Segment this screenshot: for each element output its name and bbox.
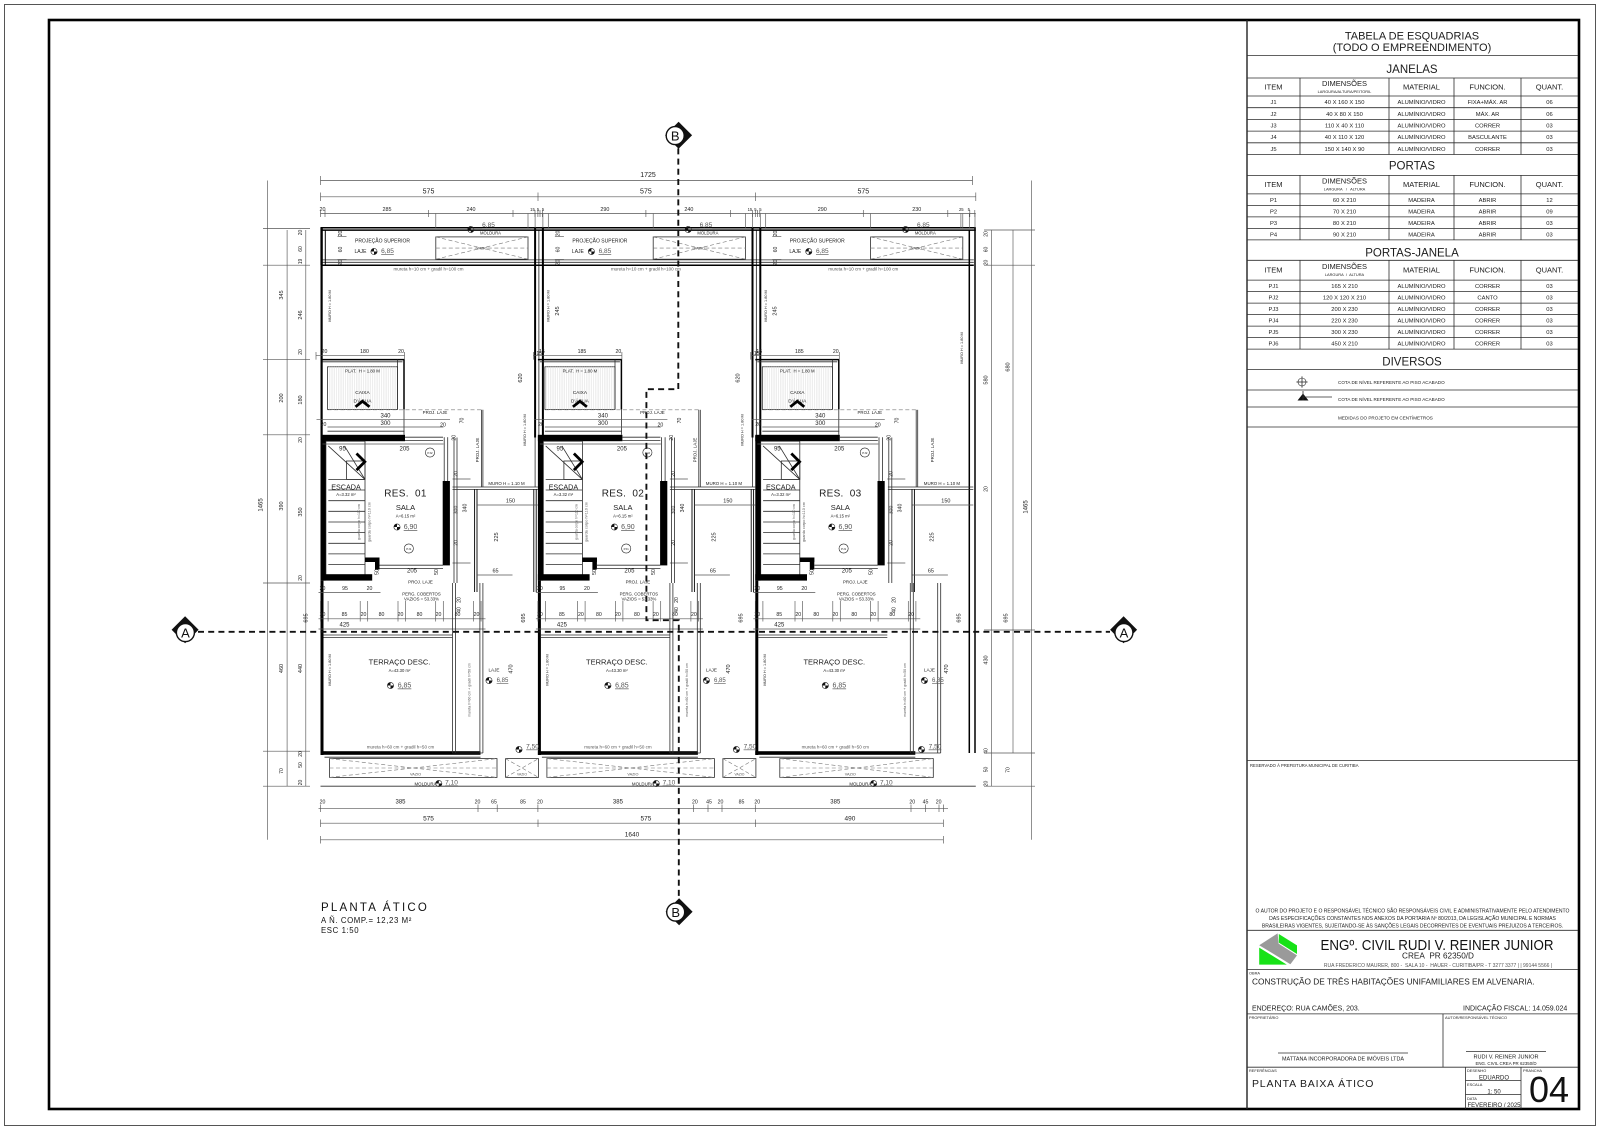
svg-text:VAZIOS = 53.33%: VAZIOS = 53.33%	[839, 597, 874, 602]
svg-text:MATERIAL: MATERIAL	[1403, 83, 1440, 92]
svg-text:20: 20	[298, 780, 304, 786]
svg-text:PJ3: PJ3	[1269, 307, 1279, 313]
svg-text:205: 205	[399, 447, 410, 453]
svg-text:95: 95	[774, 447, 781, 453]
svg-text:575: 575	[857, 189, 869, 196]
svg-text:09: 09	[1546, 209, 1552, 215]
svg-text:COTA DE NÍVEL REFERENTE AO PIS: COTA DE NÍVEL REFERENTE AO PISO ACABADO	[1338, 396, 1445, 402]
svg-text:245: 245	[555, 306, 561, 315]
svg-text:1725: 1725	[640, 172, 656, 179]
svg-text:450 X 210: 450 X 210	[1331, 342, 1357, 348]
svg-text:mureta h=10 cm + gradil h=100: mureta h=10 cm + gradil h=100 cm	[394, 267, 464, 272]
svg-text:VAZIO: VAZIO	[476, 247, 487, 251]
svg-text:460: 460	[279, 664, 285, 673]
svg-text:200: 200	[279, 393, 285, 402]
svg-text:PROJ. LAJE: PROJ. LAJE	[423, 410, 448, 415]
svg-text:ESCALA: ESCALA	[1467, 1082, 1483, 1087]
svg-text:385: 385	[613, 800, 624, 806]
svg-text:ALUMÍNIO/VIDRO: ALUMÍNIO/VIDRO	[1398, 283, 1446, 290]
svg-text:425: 425	[557, 623, 568, 629]
svg-text:PORTAS: PORTAS	[1389, 161, 1436, 173]
svg-text:20: 20	[984, 260, 990, 266]
svg-text:A: A	[1120, 625, 1129, 640]
svg-text:guarda corpo h=110 cm: guarda corpo h=110 cm	[574, 504, 578, 540]
svg-text:ALUMÍNIO/VIDRO: ALUMÍNIO/VIDRO	[1398, 134, 1446, 141]
svg-text:MURO H = 1.80 M: MURO H = 1.80 M	[960, 332, 964, 363]
svg-text:20: 20	[692, 800, 698, 806]
svg-text:PLAT. H = 1.80 M: PLAT. H = 1.80 M	[563, 369, 598, 374]
svg-text:150: 150	[506, 498, 515, 504]
svg-text:B: B	[671, 128, 680, 143]
svg-text:PJ6: PJ6	[1269, 342, 1279, 348]
svg-text:70: 70	[677, 418, 683, 424]
svg-text:FUNCION.: FUNCION.	[1469, 266, 1505, 275]
svg-text:20: 20	[754, 586, 760, 592]
svg-text:50: 50	[984, 767, 990, 773]
svg-text:385: 385	[830, 800, 841, 806]
svg-text:80 X 210: 80 X 210	[1333, 221, 1356, 227]
svg-text:MOLDURA: MOLDURA	[849, 781, 871, 786]
svg-text:PLANTA BAIXA ÁTICO: PLANTA BAIXA ÁTICO	[1252, 1077, 1374, 1090]
svg-text:PJ2: PJ2	[862, 451, 868, 455]
svg-text:VAZIO: VAZIO	[845, 773, 856, 777]
svg-text:PROJEÇÃO SUPERIOR: PROJEÇÃO SUPERIOR	[790, 238, 845, 245]
svg-text:70 X 210: 70 X 210	[1333, 209, 1356, 215]
svg-text:6,85: 6,85	[932, 678, 944, 684]
svg-text:150: 150	[941, 498, 950, 504]
svg-text:CANTO: CANTO	[1477, 296, 1498, 302]
svg-text:guarda corpo h=110 cm: guarda corpo h=110 cm	[585, 502, 589, 542]
svg-text:695: 695	[956, 613, 962, 622]
svg-text:50: 50	[592, 569, 598, 575]
svg-text:TABELA DE ESQUADRIAS: TABELA DE ESQUADRIAS	[1345, 31, 1479, 43]
svg-text:150: 150	[723, 498, 732, 504]
svg-text:20: 20	[338, 231, 344, 237]
svg-text:BRASILEIRAS VIGENTES, SUJEITAN: BRASILEIRAS VIGENTES, SUJEITANDO-SE ÀS S…	[1262, 923, 1563, 930]
svg-text:guarda corpo h=110 cm: guarda corpo h=110 cm	[357, 504, 361, 540]
svg-text:245: 245	[772, 306, 778, 315]
svg-text:MEDIDAS DO PROJETO EM CENTÍMET: MEDIDAS DO PROJETO EM CENTÍMETROS	[1338, 415, 1433, 421]
svg-text:150 X 140 X 90: 150 X 140 X 90	[1325, 147, 1365, 153]
svg-text:220 X 230: 220 X 230	[1331, 319, 1357, 325]
svg-text:20: 20	[773, 260, 779, 266]
svg-text:20: 20	[555, 260, 561, 266]
svg-text:DIMENSÕES: DIMENSÕES	[1322, 262, 1367, 271]
svg-text:ABRIR: ABRIR	[1479, 221, 1497, 227]
svg-text:1465: 1465	[1023, 500, 1029, 514]
svg-text:300 X 230: 300 X 230	[1331, 330, 1357, 336]
svg-text:ESC 1:50: ESC 1:50	[321, 926, 359, 935]
svg-text:340: 340	[463, 504, 469, 513]
svg-text:CONSTRUÇÃO DE TRÊS HABITAÇÕES: CONSTRUÇÃO DE TRÊS HABITAÇÕES UNIFAMILIA…	[1252, 977, 1535, 987]
svg-text:20: 20	[474, 612, 480, 618]
svg-text:7,10: 7,10	[663, 780, 676, 787]
svg-text:RES. 03: RES. 03	[819, 489, 862, 500]
svg-text:60 X 210: 60 X 210	[1333, 198, 1356, 204]
svg-text:PJ1: PJ1	[406, 547, 412, 551]
svg-text:20: 20	[616, 349, 622, 355]
svg-text:20: 20	[298, 751, 304, 757]
svg-text:LAJE: LAJE	[924, 668, 935, 673]
svg-text:12: 12	[1546, 198, 1552, 204]
svg-text:MURO H = 1.80 M: MURO H = 1.80 M	[545, 654, 549, 685]
svg-text:guarda corpo h=110 cm: guarda corpo h=110 cm	[367, 502, 371, 542]
svg-text:20: 20	[338, 260, 344, 266]
svg-text:7,50: 7,50	[929, 744, 942, 751]
svg-text:20: 20	[320, 586, 326, 592]
svg-text:20: 20	[298, 349, 304, 355]
svg-text:ESCADA: ESCADA	[331, 483, 361, 492]
svg-text:J1: J1	[1270, 100, 1276, 106]
svg-text:LARGURA / ALTURA: LARGURA / ALTURA	[1325, 272, 1365, 277]
svg-text:6,85: 6,85	[832, 683, 846, 690]
svg-text:300: 300	[671, 506, 677, 515]
svg-text:240: 240	[467, 207, 476, 213]
svg-text:85: 85	[559, 612, 565, 618]
svg-text:7,10: 7,10	[880, 780, 893, 787]
svg-text:575: 575	[423, 189, 435, 196]
svg-text:200 X 230: 200 X 230	[1331, 307, 1357, 313]
svg-text:CORRER: CORRER	[1475, 147, 1500, 153]
svg-text:20: 20	[984, 781, 990, 787]
svg-text:MOLDURA: MOLDURA	[915, 231, 936, 236]
svg-text:PROJ. LAJE: PROJ. LAJE	[475, 438, 480, 463]
svg-text:A=3.32 m²: A=3.32 m²	[336, 492, 356, 497]
svg-text:ITEM: ITEM	[1265, 266, 1283, 275]
svg-text:20: 20	[398, 612, 404, 618]
svg-text:OBRA: OBRA	[1249, 971, 1260, 976]
svg-text:20: 20	[653, 612, 659, 618]
svg-text:20: 20	[475, 800, 481, 806]
svg-text:185: 185	[578, 349, 587, 355]
svg-text:03: 03	[1546, 319, 1552, 325]
svg-text:695: 695	[521, 613, 527, 622]
svg-text:MOLDURA: MOLDURA	[632, 781, 654, 786]
svg-text:300: 300	[888, 506, 894, 515]
svg-text:03: 03	[1546, 284, 1552, 290]
svg-text:A=6.15 m²: A=6.15 m²	[396, 514, 416, 519]
svg-text:ESCADA: ESCADA	[549, 483, 579, 492]
svg-text:80: 80	[379, 612, 385, 618]
svg-text:340: 340	[815, 414, 826, 420]
svg-text:TERRAÇO DESC.: TERRAÇO DESC.	[369, 658, 431, 667]
svg-text:J4: J4	[1270, 135, 1277, 141]
svg-text:REFERÊNCIAS: REFERÊNCIAS	[1249, 1068, 1277, 1073]
svg-text:425: 425	[774, 623, 785, 629]
svg-text:DIMENSÕES: DIMENSÕES	[1322, 79, 1367, 88]
svg-text:20: 20	[833, 349, 839, 355]
svg-text:INDICAÇÃO FISCAL: 14.059.024: INDICAÇÃO FISCAL: 14.059.024	[1463, 1004, 1567, 1013]
svg-text:6,85: 6,85	[599, 248, 612, 255]
svg-text:95: 95	[339, 447, 346, 453]
svg-text:ABRIR: ABRIR	[1479, 209, 1497, 215]
svg-text:03: 03	[1546, 124, 1552, 130]
svg-text:240: 240	[684, 207, 693, 213]
svg-text:180: 180	[360, 349, 369, 355]
svg-text:65: 65	[491, 800, 497, 806]
svg-text:QUANT.: QUANT.	[1536, 83, 1564, 92]
svg-text:6,85: 6,85	[398, 683, 412, 690]
svg-text:03: 03	[1546, 342, 1552, 348]
svg-text:mureta h=60 cm + gradil h=50 c: mureta h=60 cm + gradil h=50 cm	[468, 663, 472, 717]
svg-text:03: 03	[1546, 232, 1552, 238]
svg-text:PJ2: PJ2	[1269, 296, 1279, 302]
svg-text:A Ñ. COMP.= 12,23 M²: A Ñ. COMP.= 12,23 M²	[321, 916, 412, 925]
svg-text:LARGURA/ALTURA/PEITORIL: LARGURA/ALTURA/PEITORIL	[1318, 89, 1373, 94]
svg-text:580: 580	[984, 375, 990, 384]
svg-text:20: 20	[398, 349, 404, 355]
svg-text:20: 20	[440, 423, 446, 429]
svg-text:80: 80	[417, 612, 423, 618]
svg-text:65: 65	[710, 569, 716, 575]
svg-text:CORRER: CORRER	[1475, 319, 1500, 325]
svg-text:575: 575	[423, 816, 434, 823]
svg-text:6,85: 6,85	[917, 222, 930, 229]
svg-text:A=43.30 m²: A=43.30 m²	[606, 668, 628, 673]
svg-text:20: 20	[875, 423, 881, 429]
svg-text:20: 20	[909, 800, 915, 806]
svg-text:ESCADA: ESCADA	[766, 483, 796, 492]
svg-text:MURO H = 1.80 M: MURO H = 1.80 M	[546, 290, 550, 321]
svg-text:VAZIO: VAZIO	[734, 773, 744, 777]
svg-text:90 X 210: 90 X 210	[1333, 232, 1356, 238]
svg-text:TERRAÇO DESC.: TERRAÇO DESC.	[586, 658, 648, 667]
svg-text:CAIXA: CAIXA	[355, 390, 370, 396]
svg-text:180: 180	[298, 395, 304, 404]
svg-text:mureta h=60 cm + gradil h=50 c: mureta h=60 cm + gradil h=50 cm	[367, 745, 435, 750]
svg-text:P3: P3	[1270, 221, 1277, 227]
svg-text:MURO H = 1.80 M: MURO H = 1.80 M	[740, 414, 744, 445]
svg-text:120 X 120 X 210: 120 X 120 X 210	[1323, 296, 1366, 302]
svg-text:PJ5: PJ5	[1269, 330, 1279, 336]
svg-text:ALUMÍNIO/VIDRO: ALUMÍNIO/VIDRO	[1398, 146, 1446, 153]
svg-text:80: 80	[634, 612, 640, 618]
svg-text:440: 440	[298, 664, 304, 673]
svg-text:JANELAS: JANELAS	[1386, 64, 1437, 76]
svg-text:03: 03	[1546, 135, 1552, 141]
svg-text:CREA PR 62350/D: CREA PR 62350/D	[1402, 952, 1474, 961]
svg-text:MOLDURA: MOLDURA	[415, 781, 437, 786]
svg-text:VAZIOS = 53.33%: VAZIOS = 53.33%	[404, 597, 439, 602]
svg-text:230: 230	[912, 207, 921, 213]
svg-text:246: 246	[298, 310, 304, 319]
svg-text:20: 20	[321, 422, 327, 428]
svg-text:620: 620	[735, 373, 741, 382]
svg-text:B: B	[671, 905, 680, 920]
svg-text:85: 85	[342, 612, 348, 618]
svg-text:CORRER: CORRER	[1475, 342, 1500, 348]
svg-text:695: 695	[1004, 613, 1010, 622]
svg-text:SALA: SALA	[831, 503, 850, 512]
svg-text:VAZIO: VAZIO	[410, 773, 421, 777]
svg-text:225: 225	[929, 532, 935, 541]
svg-text:20: 20	[691, 612, 697, 618]
svg-text:40 X 160 X 150: 40 X 160 X 150	[1325, 100, 1365, 106]
svg-text:MURO H = 1.10 M: MURO H = 1.10 M	[706, 481, 743, 486]
svg-text:ALUMÍNIO/VIDRO: ALUMÍNIO/VIDRO	[1398, 99, 1446, 106]
svg-text:205: 205	[407, 569, 418, 575]
svg-text:60: 60	[338, 247, 344, 253]
svg-text:620: 620	[518, 373, 524, 382]
svg-text:385: 385	[395, 800, 406, 806]
svg-text:03: 03	[1546, 221, 1552, 227]
svg-text:20: 20	[984, 486, 990, 492]
svg-text:20: 20	[870, 612, 876, 618]
svg-text:20: 20	[936, 800, 942, 806]
svg-text:guarda corpo h=110 cm: guarda corpo h=110 cm	[792, 504, 796, 540]
svg-text:6,85: 6,85	[482, 222, 495, 229]
svg-text:RES. 01: RES. 01	[384, 489, 427, 500]
svg-text:80: 80	[596, 612, 602, 618]
svg-text:ALUMÍNIO/VIDRO: ALUMÍNIO/VIDRO	[1398, 329, 1446, 336]
svg-text:CORRER: CORRER	[1475, 307, 1500, 313]
svg-text:mureta h=60 cm + gradil h=50 c: mureta h=60 cm + gradil h=50 cm	[802, 745, 870, 750]
svg-text:DAS ESPECIFICAÇÕES CONSTANTES: DAS ESPECIFICAÇÕES CONSTANTES NOS ANEXOS…	[1269, 915, 1556, 922]
svg-text:6,85: 6,85	[497, 678, 509, 684]
svg-text:7,10: 7,10	[445, 780, 458, 787]
svg-text:680: 680	[1005, 362, 1011, 371]
svg-text:19: 19	[298, 259, 304, 265]
svg-text:PROPRIETÁRIO: PROPRIETÁRIO	[1249, 1015, 1278, 1020]
svg-text:VAZIO: VAZIO	[517, 773, 527, 777]
svg-text:MURO H = 1.10 M: MURO H = 1.10 M	[488, 481, 525, 486]
svg-text:DIVERSOS: DIVERSOS	[1382, 357, 1442, 369]
svg-text:ABRIR: ABRIR	[1479, 198, 1497, 204]
svg-text:7,50: 7,50	[744, 744, 757, 751]
svg-text:SALA: SALA	[613, 503, 632, 512]
svg-text:390: 390	[279, 501, 285, 510]
svg-text:70: 70	[279, 768, 285, 774]
svg-text:PLANTA ÁTICO: PLANTA ÁTICO	[321, 901, 429, 914]
svg-text:06: 06	[1546, 112, 1552, 118]
svg-text:6,85: 6,85	[381, 248, 394, 255]
svg-text:6,85: 6,85	[714, 678, 726, 684]
svg-text:guarda corpo h=110 cm: guarda corpo h=110 cm	[802, 502, 806, 542]
svg-text:mureta h=60 cm + gradil h=50 c: mureta h=60 cm + gradil h=50 cm	[685, 663, 689, 717]
svg-text:20: 20	[984, 231, 990, 237]
svg-text:MURO H = 1.10 M: MURO H = 1.10 M	[924, 481, 961, 486]
svg-text:CORRER: CORRER	[1475, 330, 1500, 336]
svg-text:FIXA+MÁX. AR: FIXA+MÁX. AR	[1468, 99, 1508, 106]
svg-text:PORTAS-JANELA: PORTAS-JANELA	[1365, 248, 1459, 260]
svg-text:CAIXA: CAIXA	[790, 390, 805, 396]
svg-text:6,90: 6,90	[838, 524, 852, 531]
svg-text:95: 95	[560, 586, 566, 592]
svg-text:40 X 110 X 120: 40 X 110 X 120	[1325, 135, 1365, 141]
svg-text:PJ2: PJ2	[427, 451, 433, 455]
svg-text:20: 20	[367, 586, 373, 592]
svg-text:TERRAÇO DESC.: TERRAÇO DESC.	[803, 658, 865, 667]
svg-text:575: 575	[640, 816, 651, 823]
svg-text:FEVEREIRO / 2025: FEVEREIRO / 2025	[1467, 1103, 1521, 1109]
svg-text:20: 20	[578, 612, 584, 618]
svg-text:A=6.15 m²: A=6.15 m²	[831, 514, 851, 519]
svg-text:MADEIRA: MADEIRA	[1408, 221, 1435, 227]
svg-text:6,90: 6,90	[404, 524, 418, 531]
svg-text:A: A	[181, 625, 190, 640]
svg-text:6,85: 6,85	[816, 248, 829, 255]
svg-text:MADEIRA: MADEIRA	[1408, 232, 1435, 238]
svg-text:205: 205	[834, 447, 845, 453]
svg-text:MATERIAL: MATERIAL	[1403, 266, 1440, 275]
svg-text:mureta h=60 cm + gradil h=50 c: mureta h=60 cm + gradil h=50 cm	[903, 663, 907, 717]
svg-text:RUDI V. REINER JUNIOR: RUDI V. REINER JUNIOR	[1473, 1055, 1538, 1061]
svg-text:ALUMÍNIO/VIDRO: ALUMÍNIO/VIDRO	[1398, 341, 1446, 348]
svg-text:MURO H = 1.80 M: MURO H = 1.80 M	[328, 654, 332, 685]
svg-text:COTA DE NÍVEL REFERENTE AO PIS: COTA DE NÍVEL REFERENTE AO PISO ACABADO	[1338, 379, 1445, 385]
svg-text:490: 490	[844, 816, 855, 823]
svg-text:ALUMÍNIO/VIDRO: ALUMÍNIO/VIDRO	[1398, 123, 1446, 130]
svg-text:45: 45	[706, 800, 712, 806]
svg-text:P1: P1	[1270, 198, 1277, 204]
svg-text:20: 20	[801, 586, 807, 592]
svg-text:P4: P4	[1270, 232, 1278, 238]
svg-text:165 X 210: 165 X 210	[1331, 284, 1357, 290]
svg-text:65: 65	[492, 569, 498, 575]
svg-text:QUANT.: QUANT.	[1536, 266, 1564, 275]
svg-text:425: 425	[339, 623, 350, 629]
svg-text:DESENHO: DESENHO	[1467, 1068, 1486, 1073]
svg-text:LAJE: LAJE	[789, 249, 802, 255]
svg-text:mureta h=10 cm + gradil h=100: mureta h=10 cm + gradil h=100 cm	[611, 267, 681, 272]
svg-text:340: 340	[897, 504, 903, 513]
svg-text:QUANT.: QUANT.	[1536, 180, 1564, 189]
svg-text:6,90: 6,90	[621, 524, 635, 531]
svg-text:20: 20	[538, 422, 544, 428]
svg-text:20: 20	[671, 540, 677, 546]
svg-text:DATA: DATA	[1467, 1096, 1477, 1101]
svg-text:PROJEÇÃO SUPERIOR: PROJEÇÃO SUPERIOR	[355, 238, 410, 245]
svg-text:575: 575	[640, 189, 652, 196]
svg-text:20: 20	[322, 349, 328, 355]
svg-text:03: 03	[1546, 296, 1552, 302]
svg-text:20: 20	[773, 231, 779, 237]
svg-text:20: 20	[832, 612, 838, 618]
svg-text:80: 80	[889, 612, 895, 618]
svg-text:PJ4: PJ4	[1269, 319, 1280, 325]
svg-text:695: 695	[738, 613, 744, 622]
svg-text:LARGURA / ALTURA: LARGURA / ALTURA	[1324, 187, 1366, 192]
svg-text:60: 60	[984, 247, 990, 253]
svg-text:60: 60	[298, 246, 304, 252]
svg-text:VAZIO: VAZIO	[911, 247, 922, 251]
svg-text:300: 300	[815, 421, 826, 427]
svg-text:O AUTOR DO PROJETO E O RESPONS: O AUTOR DO PROJETO E O RESPONSÁVEL TÉCNI…	[1256, 908, 1570, 915]
svg-text:PROJ. LAJE: PROJ. LAJE	[857, 410, 882, 415]
svg-text:PJ1: PJ1	[624, 547, 630, 551]
svg-text:15: 15	[536, 351, 542, 357]
svg-text:A=43.30 m²: A=43.30 m²	[823, 668, 845, 673]
svg-text:695: 695	[304, 613, 310, 622]
svg-text:7,50: 7,50	[526, 744, 539, 751]
svg-text:LAJE: LAJE	[572, 249, 585, 255]
svg-text:80: 80	[851, 612, 857, 618]
svg-text:20: 20	[361, 612, 367, 618]
svg-text:03: 03	[1546, 330, 1552, 336]
svg-text:40 X 80 X 150: 40 X 80 X 150	[1326, 112, 1363, 118]
svg-text:PLAT. H = 1.80 M: PLAT. H = 1.80 M	[345, 369, 380, 374]
svg-text:VAZIOS = 53.33%: VAZIOS = 53.33%	[621, 597, 656, 602]
svg-text:20: 20	[671, 471, 677, 477]
svg-text:70: 70	[460, 418, 466, 424]
svg-text:1465: 1465	[259, 498, 265, 512]
svg-text:285: 285	[383, 207, 392, 213]
svg-text:95: 95	[557, 447, 564, 453]
svg-text:20: 20	[615, 612, 621, 618]
svg-text:CORRER: CORRER	[1475, 124, 1500, 130]
svg-text:225: 225	[711, 532, 717, 541]
svg-text:ENG. CIVIL CREA PR 62350/D: ENG. CIVIL CREA PR 62350/D	[1475, 1061, 1536, 1066]
